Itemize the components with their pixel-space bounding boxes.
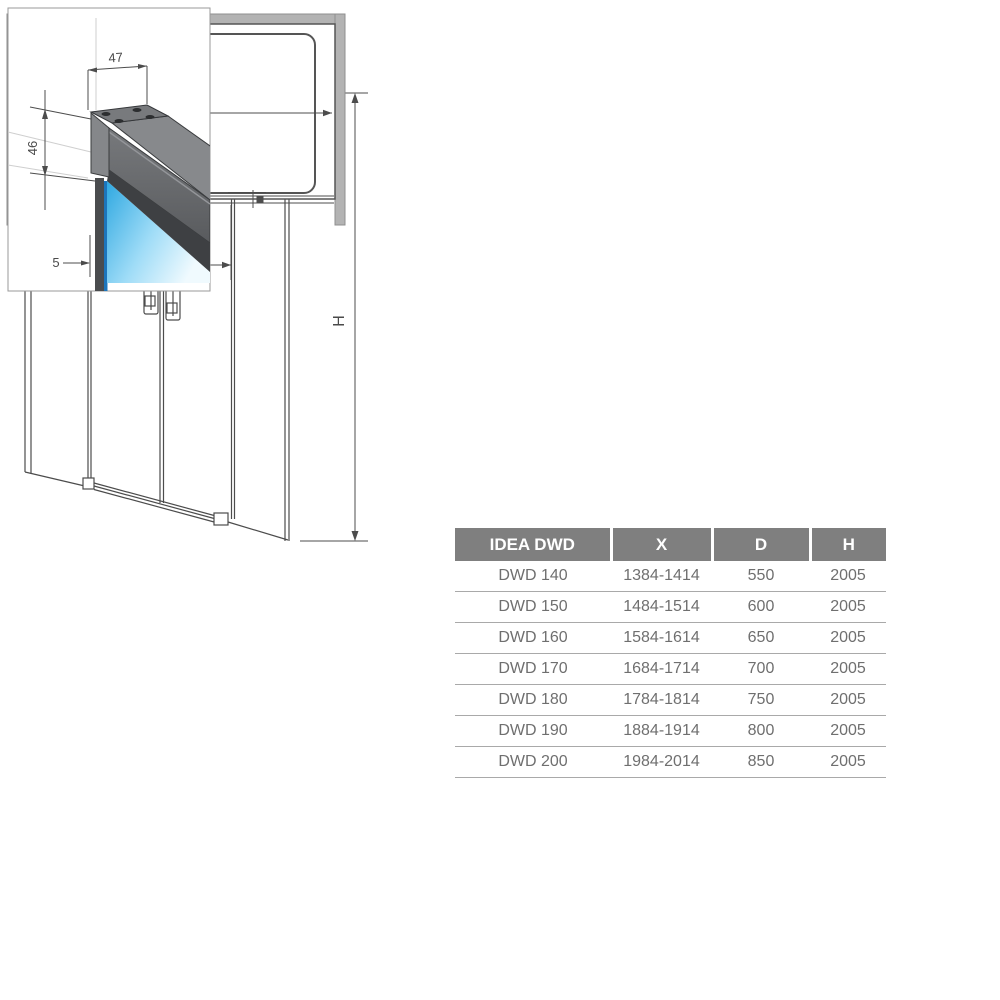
table-row: DWD 1801784-18147502005: [455, 685, 886, 716]
spec-table-header: IDEA DWD X D H: [455, 528, 886, 561]
dimension-46-label: 46: [25, 141, 40, 155]
table-cell: 2005: [810, 747, 886, 778]
table-row: DWD 1901884-19148002005: [455, 716, 886, 747]
table-cell: 1784-1814: [611, 685, 712, 716]
table-cell: 1484-1514: [611, 592, 712, 623]
table-cell: 1984-2014: [611, 747, 712, 778]
table-cell: 1884-1914: [611, 716, 712, 747]
header-cell-x: X: [611, 528, 712, 561]
table-cell: DWD 190: [455, 716, 611, 747]
table-cell: 700: [712, 654, 810, 685]
arrow-right: [222, 262, 231, 268]
table-row: DWD 1401384-14145502005: [455, 561, 886, 592]
table-cell: 600: [712, 592, 810, 623]
table-cell: 550: [712, 561, 810, 592]
table-cell: DWD 200: [455, 747, 611, 778]
header-cell-d: D: [712, 528, 810, 561]
dimension-h-label: H: [331, 315, 348, 327]
table-cell: 2005: [810, 623, 886, 654]
table-cell: 2005: [810, 561, 886, 592]
table-row: DWD 2001984-20148502005: [455, 747, 886, 778]
table-cell: DWD 160: [455, 623, 611, 654]
roller-right: [257, 196, 263, 202]
glass-edge: [104, 181, 108, 291]
profile-corner-detail: 47 46 5: [0, 0, 220, 295]
table-cell: 2005: [810, 685, 886, 716]
table-row: DWD 1501484-15146002005: [455, 592, 886, 623]
table-cell: DWD 140: [455, 561, 611, 592]
table-cell: DWD 170: [455, 654, 611, 685]
glass-frame-strip: [95, 178, 104, 291]
table-cell: 1384-1414: [611, 561, 712, 592]
table-cell: 1584-1614: [611, 623, 712, 654]
table-cell: DWD 180: [455, 685, 611, 716]
table-row: DWD 1701684-17147002005: [455, 654, 886, 685]
spec-table-container: IDEA DWD X D H DWD 1401384-14145502005DW…: [455, 528, 886, 778]
table-row: DWD 1601584-16146502005: [455, 623, 886, 654]
detail-drawing: 47 46 5: [8, 8, 220, 291]
spec-table-body: DWD 1401384-14145502005DWD 1501484-15146…: [455, 561, 886, 778]
drawing-sheet: H X: [0, 0, 1000, 1000]
spec-table: IDEA DWD X D H DWD 1401384-14145502005DW…: [455, 528, 886, 778]
header-row: IDEA DWD X D H: [455, 528, 886, 561]
table-cell: 650: [712, 623, 810, 654]
dimension-47-label: 47: [108, 50, 123, 66]
bottom-guide-rail: [25, 472, 288, 540]
table-cell: 2005: [810, 592, 886, 623]
table-cell: 2005: [810, 716, 886, 747]
arrow-down: [352, 531, 359, 541]
table-cell: 750: [712, 685, 810, 716]
table-cell: 2005: [810, 654, 886, 685]
table-cell: 850: [712, 747, 810, 778]
dimension-5-label: 5: [52, 255, 59, 270]
table-cell: DWD 150: [455, 592, 611, 623]
table-cell: 1684-1714: [611, 654, 712, 685]
table-cell: 800: [712, 716, 810, 747]
header-cell-series: IDEA DWD: [455, 528, 611, 561]
header-cell-h: H: [810, 528, 886, 561]
